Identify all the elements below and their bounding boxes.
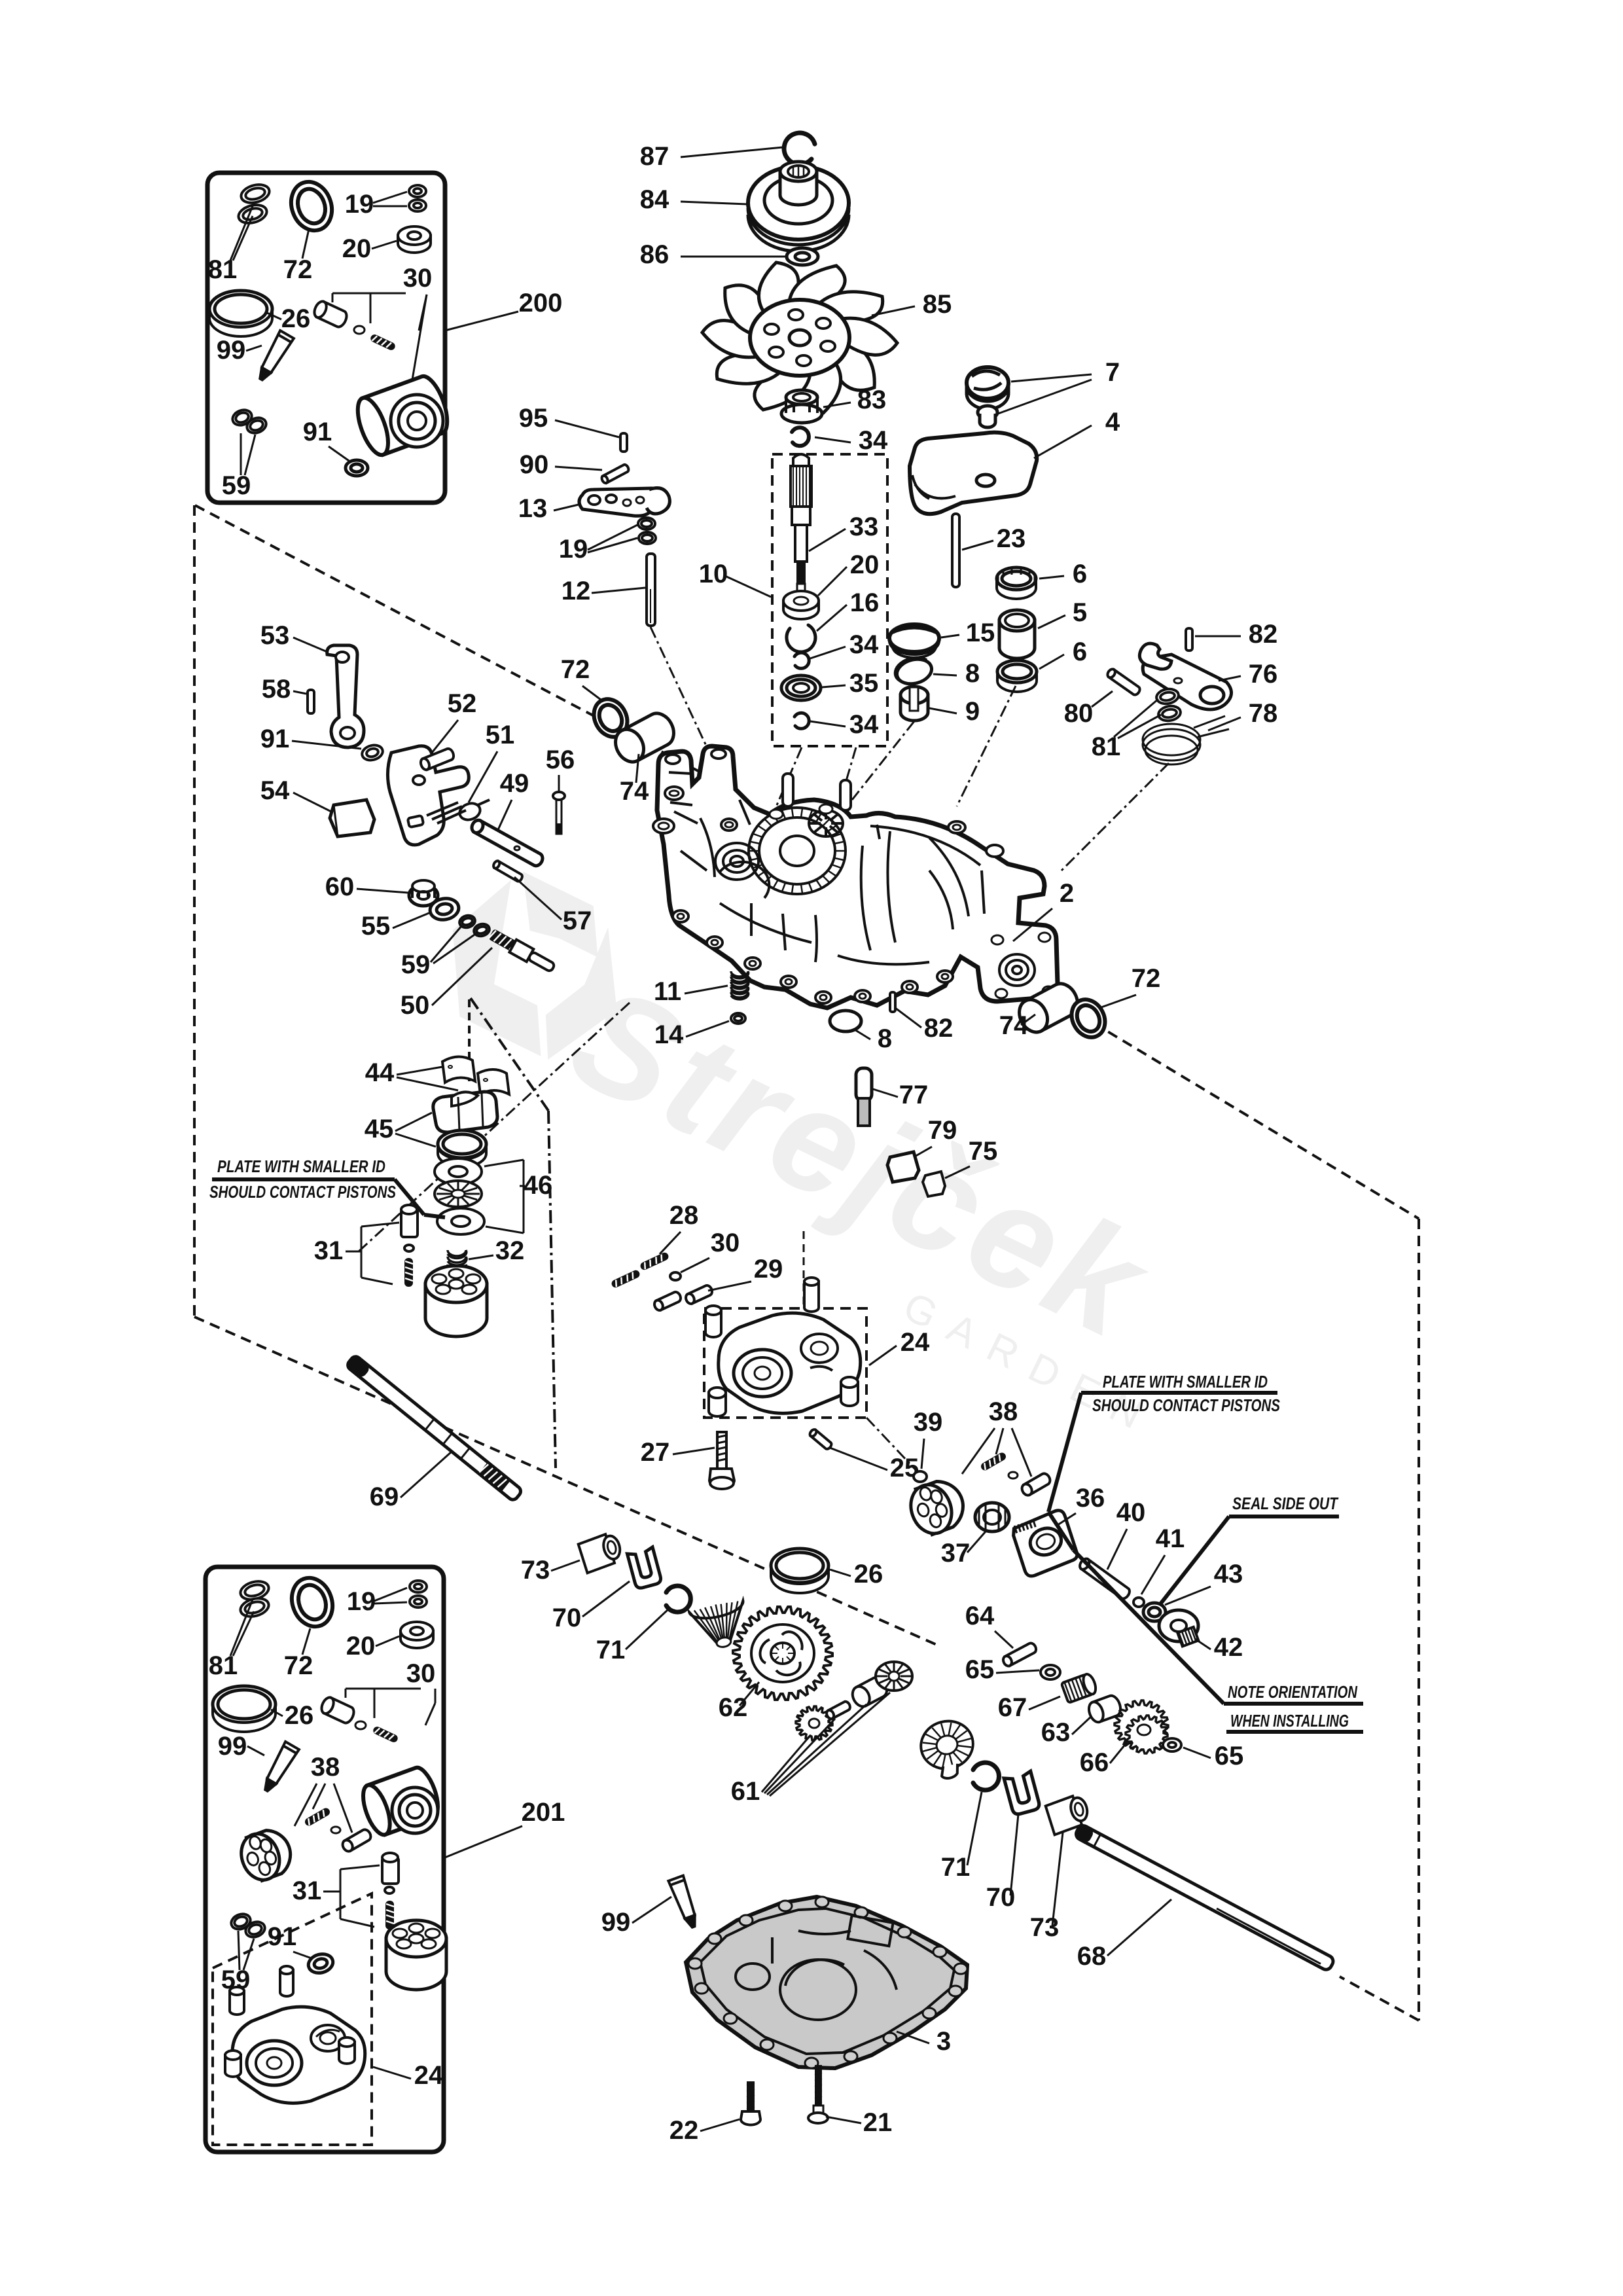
svg-text:58: 58: [262, 675, 291, 704]
svg-text:90: 90: [520, 450, 549, 479]
svg-text:200: 200: [519, 289, 563, 317]
svg-text:65: 65: [1215, 1742, 1244, 1770]
svg-text:63: 63: [1041, 1718, 1071, 1747]
svg-text:20: 20: [342, 234, 372, 263]
svg-text:72: 72: [1132, 964, 1161, 993]
svg-text:80: 80: [1064, 699, 1094, 728]
svg-text:44: 44: [365, 1058, 395, 1087]
svg-text:49: 49: [500, 769, 529, 798]
svg-text:34: 34: [849, 710, 879, 739]
svg-text:28: 28: [669, 1201, 699, 1230]
svg-text:95: 95: [519, 404, 548, 433]
svg-text:68: 68: [1077, 1942, 1107, 1971]
svg-text:62: 62: [719, 1693, 748, 1722]
svg-text:21: 21: [863, 2108, 893, 2137]
svg-text:24: 24: [901, 1328, 930, 1357]
svg-text:53: 53: [260, 621, 290, 650]
svg-text:15: 15: [966, 619, 995, 647]
svg-text:38: 38: [311, 1753, 340, 1782]
svg-text:59: 59: [222, 471, 251, 500]
svg-text:52: 52: [448, 689, 477, 718]
svg-text:59: 59: [401, 950, 431, 979]
svg-text:34: 34: [859, 426, 888, 455]
svg-text:72: 72: [283, 255, 313, 284]
svg-text:PLATE WITH SMALLER ID: PLATE WITH SMALLER ID: [1103, 1372, 1268, 1391]
svg-text:7: 7: [1105, 358, 1120, 387]
svg-text:22: 22: [669, 2116, 699, 2145]
svg-text:99: 99: [218, 1732, 247, 1761]
svg-text:85: 85: [923, 290, 952, 319]
svg-text:64: 64: [965, 1602, 995, 1630]
svg-text:29: 29: [754, 1255, 783, 1283]
svg-text:82: 82: [1249, 620, 1278, 649]
svg-text:PLATE WITH SMALLER ID: PLATE WITH SMALLER ID: [217, 1157, 385, 1176]
svg-text:40: 40: [1116, 1498, 1146, 1527]
svg-text:12: 12: [562, 577, 591, 605]
svg-text:27: 27: [641, 1438, 670, 1467]
svg-text:81: 81: [1092, 732, 1121, 761]
svg-text:87: 87: [640, 142, 669, 171]
svg-text:61: 61: [731, 1777, 760, 1806]
svg-text:30: 30: [406, 1659, 436, 1688]
svg-text:86: 86: [640, 240, 669, 269]
svg-text:9: 9: [965, 697, 980, 726]
svg-text:35: 35: [849, 669, 879, 698]
svg-text:NOTE ORIENTATION: NOTE ORIENTATION: [1228, 1682, 1358, 1702]
svg-text:76: 76: [1249, 660, 1278, 689]
svg-text:56: 56: [546, 745, 575, 774]
svg-text:4: 4: [1105, 408, 1120, 437]
svg-text:13: 13: [518, 494, 548, 523]
svg-text:30: 30: [403, 264, 433, 293]
svg-text:31: 31: [293, 1876, 322, 1905]
svg-text:26: 26: [285, 1701, 314, 1730]
svg-text:30: 30: [711, 1229, 740, 1257]
svg-text:70: 70: [552, 1604, 582, 1632]
svg-text:3: 3: [936, 2027, 951, 2056]
svg-text:39: 39: [914, 1408, 943, 1437]
svg-text:16: 16: [850, 588, 880, 617]
svg-text:71: 71: [596, 1636, 626, 1664]
svg-text:2: 2: [1060, 879, 1074, 908]
svg-text:42: 42: [1214, 1633, 1243, 1662]
svg-text:46: 46: [524, 1171, 553, 1200]
svg-text:74: 74: [999, 1011, 1029, 1040]
svg-text:72: 72: [284, 1651, 313, 1680]
svg-text:67: 67: [998, 1693, 1027, 1722]
svg-text:71: 71: [941, 1853, 971, 1882]
svg-text:SHOULD CONTACT PISTONS: SHOULD CONTACT PISTONS: [209, 1182, 397, 1202]
svg-text:43: 43: [1214, 1560, 1243, 1588]
svg-text:99: 99: [601, 1908, 631, 1937]
svg-text:79: 79: [928, 1116, 957, 1145]
svg-text:6: 6: [1073, 637, 1087, 666]
svg-text:24: 24: [414, 2061, 444, 2090]
svg-text:45: 45: [365, 1115, 394, 1143]
svg-text:19: 19: [559, 535, 588, 564]
svg-text:50: 50: [401, 991, 430, 1020]
svg-text:10: 10: [699, 560, 728, 588]
svg-text:14: 14: [654, 1020, 684, 1049]
svg-text:19: 19: [347, 1587, 376, 1616]
svg-text:91: 91: [303, 418, 332, 446]
svg-text:20: 20: [850, 550, 880, 579]
svg-text:69: 69: [370, 1482, 399, 1511]
svg-text:23: 23: [997, 524, 1026, 553]
svg-text:6: 6: [1073, 560, 1087, 588]
svg-text:37: 37: [941, 1539, 971, 1568]
svg-text:8: 8: [878, 1024, 892, 1053]
svg-text:72: 72: [561, 655, 590, 684]
svg-text:8: 8: [965, 659, 980, 688]
svg-text:78: 78: [1249, 699, 1278, 728]
svg-text:SEAL SIDE OUT: SEAL SIDE OUT: [1232, 1494, 1339, 1513]
svg-text:77: 77: [899, 1081, 929, 1109]
svg-text:38: 38: [989, 1397, 1018, 1426]
svg-text:32: 32: [495, 1236, 525, 1265]
svg-text:WHEN INSTALLING: WHEN INSTALLING: [1230, 1711, 1349, 1731]
svg-text:26: 26: [281, 304, 311, 333]
svg-text:82: 82: [924, 1014, 954, 1043]
svg-text:91: 91: [260, 725, 290, 753]
svg-text:57: 57: [563, 906, 592, 935]
svg-text:60: 60: [325, 872, 355, 901]
svg-text:20: 20: [346, 1632, 376, 1660]
svg-text:33: 33: [849, 512, 879, 541]
svg-text:84: 84: [640, 185, 669, 214]
svg-text:65: 65: [965, 1655, 995, 1684]
svg-text:41: 41: [1156, 1524, 1185, 1553]
svg-text:SHOULD CONTACT PISTONS: SHOULD CONTACT PISTONS: [1092, 1395, 1281, 1415]
svg-text:26: 26: [854, 1560, 883, 1588]
svg-text:75: 75: [969, 1137, 998, 1166]
svg-text:66: 66: [1080, 1748, 1109, 1777]
svg-text:51: 51: [486, 721, 515, 749]
svg-text:54: 54: [260, 776, 290, 805]
svg-text:73: 73: [1030, 1913, 1060, 1942]
svg-text:31: 31: [314, 1236, 344, 1265]
svg-text:99: 99: [217, 336, 246, 365]
svg-text:201: 201: [522, 1798, 565, 1827]
svg-text:36: 36: [1076, 1484, 1105, 1513]
svg-text:74: 74: [620, 777, 649, 806]
svg-text:73: 73: [521, 1556, 550, 1585]
svg-text:34: 34: [849, 630, 879, 659]
svg-text:55: 55: [361, 912, 391, 941]
svg-text:83: 83: [857, 386, 887, 414]
svg-text:11: 11: [654, 977, 681, 1006]
svg-text:5: 5: [1073, 598, 1087, 627]
svg-text:19: 19: [345, 190, 374, 219]
